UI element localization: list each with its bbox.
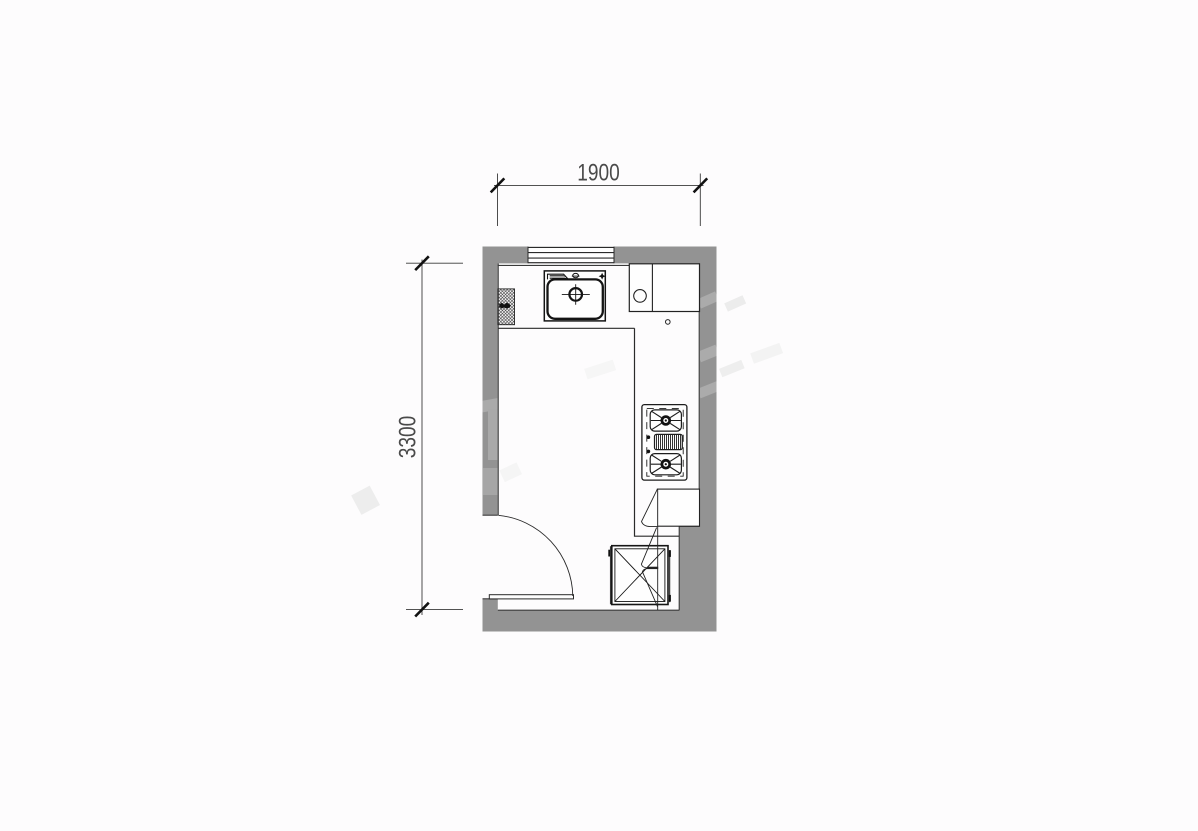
svg-text:1900: 1900 xyxy=(577,158,620,186)
svg-text:3300: 3300 xyxy=(393,416,421,459)
